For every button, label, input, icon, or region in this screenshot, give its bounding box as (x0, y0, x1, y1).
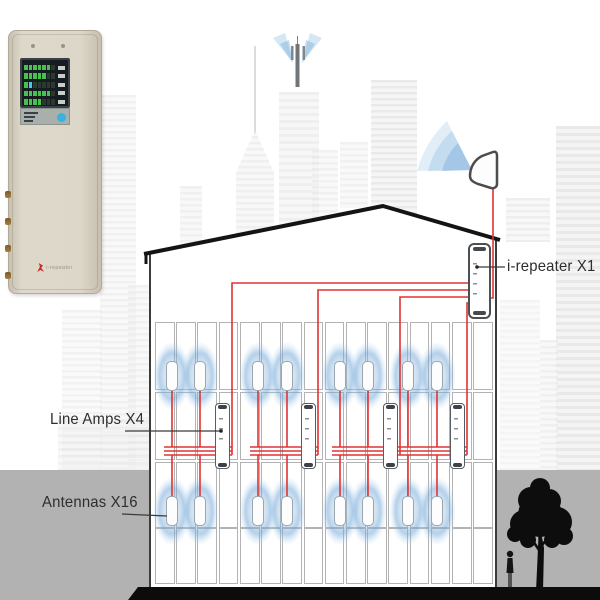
led-segment (24, 82, 28, 88)
led-segment (51, 91, 55, 97)
led-row-label (58, 66, 65, 70)
led-segment (38, 91, 42, 97)
led-segment (33, 82, 37, 88)
led-segment (29, 91, 33, 97)
lcd-text-line (24, 112, 38, 114)
led-segment (51, 82, 55, 88)
led-segment (38, 82, 42, 88)
lcd-strip (20, 108, 70, 125)
lcd-text-line (24, 116, 35, 118)
repeater-product-unit: i-repeater (8, 30, 102, 294)
led-segment (51, 65, 55, 71)
led-segment (29, 73, 33, 79)
led-segment (42, 82, 46, 88)
led-row (24, 90, 66, 96)
led-row (24, 73, 66, 79)
connector-port (5, 191, 11, 198)
led-row (24, 65, 66, 71)
led-row-label (58, 100, 65, 104)
led-segment (24, 65, 28, 71)
connector-port (5, 272, 11, 279)
led-segment (33, 99, 37, 105)
led-segment (42, 91, 46, 97)
led-segment (51, 73, 55, 79)
led-segment (24, 73, 28, 79)
led-row-label (58, 91, 65, 95)
brand-logo: i-repeater (9, 263, 101, 272)
label-repeater: i-repeater X1 (507, 258, 595, 276)
connector-port (5, 218, 11, 225)
led-segment (29, 65, 33, 71)
led-segment (33, 73, 37, 79)
led-row (24, 82, 66, 88)
led-segment (33, 65, 37, 71)
led-segment (42, 73, 46, 79)
label-antennas: Antennas X16 (42, 494, 138, 512)
led-segment (29, 99, 33, 105)
screw-icon (31, 44, 35, 48)
led-segment (47, 91, 51, 97)
led-row-label (58, 83, 65, 87)
led-segment (38, 99, 42, 105)
led-segment (24, 99, 28, 105)
led-segment (38, 65, 42, 71)
power-button (57, 113, 66, 122)
led-row (24, 99, 66, 105)
led-segment (47, 73, 51, 79)
led-segment (29, 82, 33, 88)
screw-icon (61, 44, 65, 48)
led-segment (47, 65, 51, 71)
led-segment (38, 73, 42, 79)
led-row-label (58, 74, 65, 78)
led-segment (24, 91, 28, 97)
brand-logo-icon (37, 263, 44, 272)
led-segment (47, 82, 51, 88)
connector-port (5, 245, 11, 252)
diagram-canvas: i-repeater X1 Line Amps X4 Antennas X16 … (0, 0, 600, 600)
brand-logo-text: i-repeater (46, 265, 73, 271)
led-segment (47, 99, 51, 105)
led-display (20, 58, 70, 108)
led-segment (33, 91, 37, 97)
led-segment (51, 99, 55, 105)
lcd-text-line (24, 120, 33, 122)
label-line-amps: Line Amps X4 (50, 411, 144, 429)
led-segment (42, 65, 46, 71)
led-segment (42, 99, 46, 105)
